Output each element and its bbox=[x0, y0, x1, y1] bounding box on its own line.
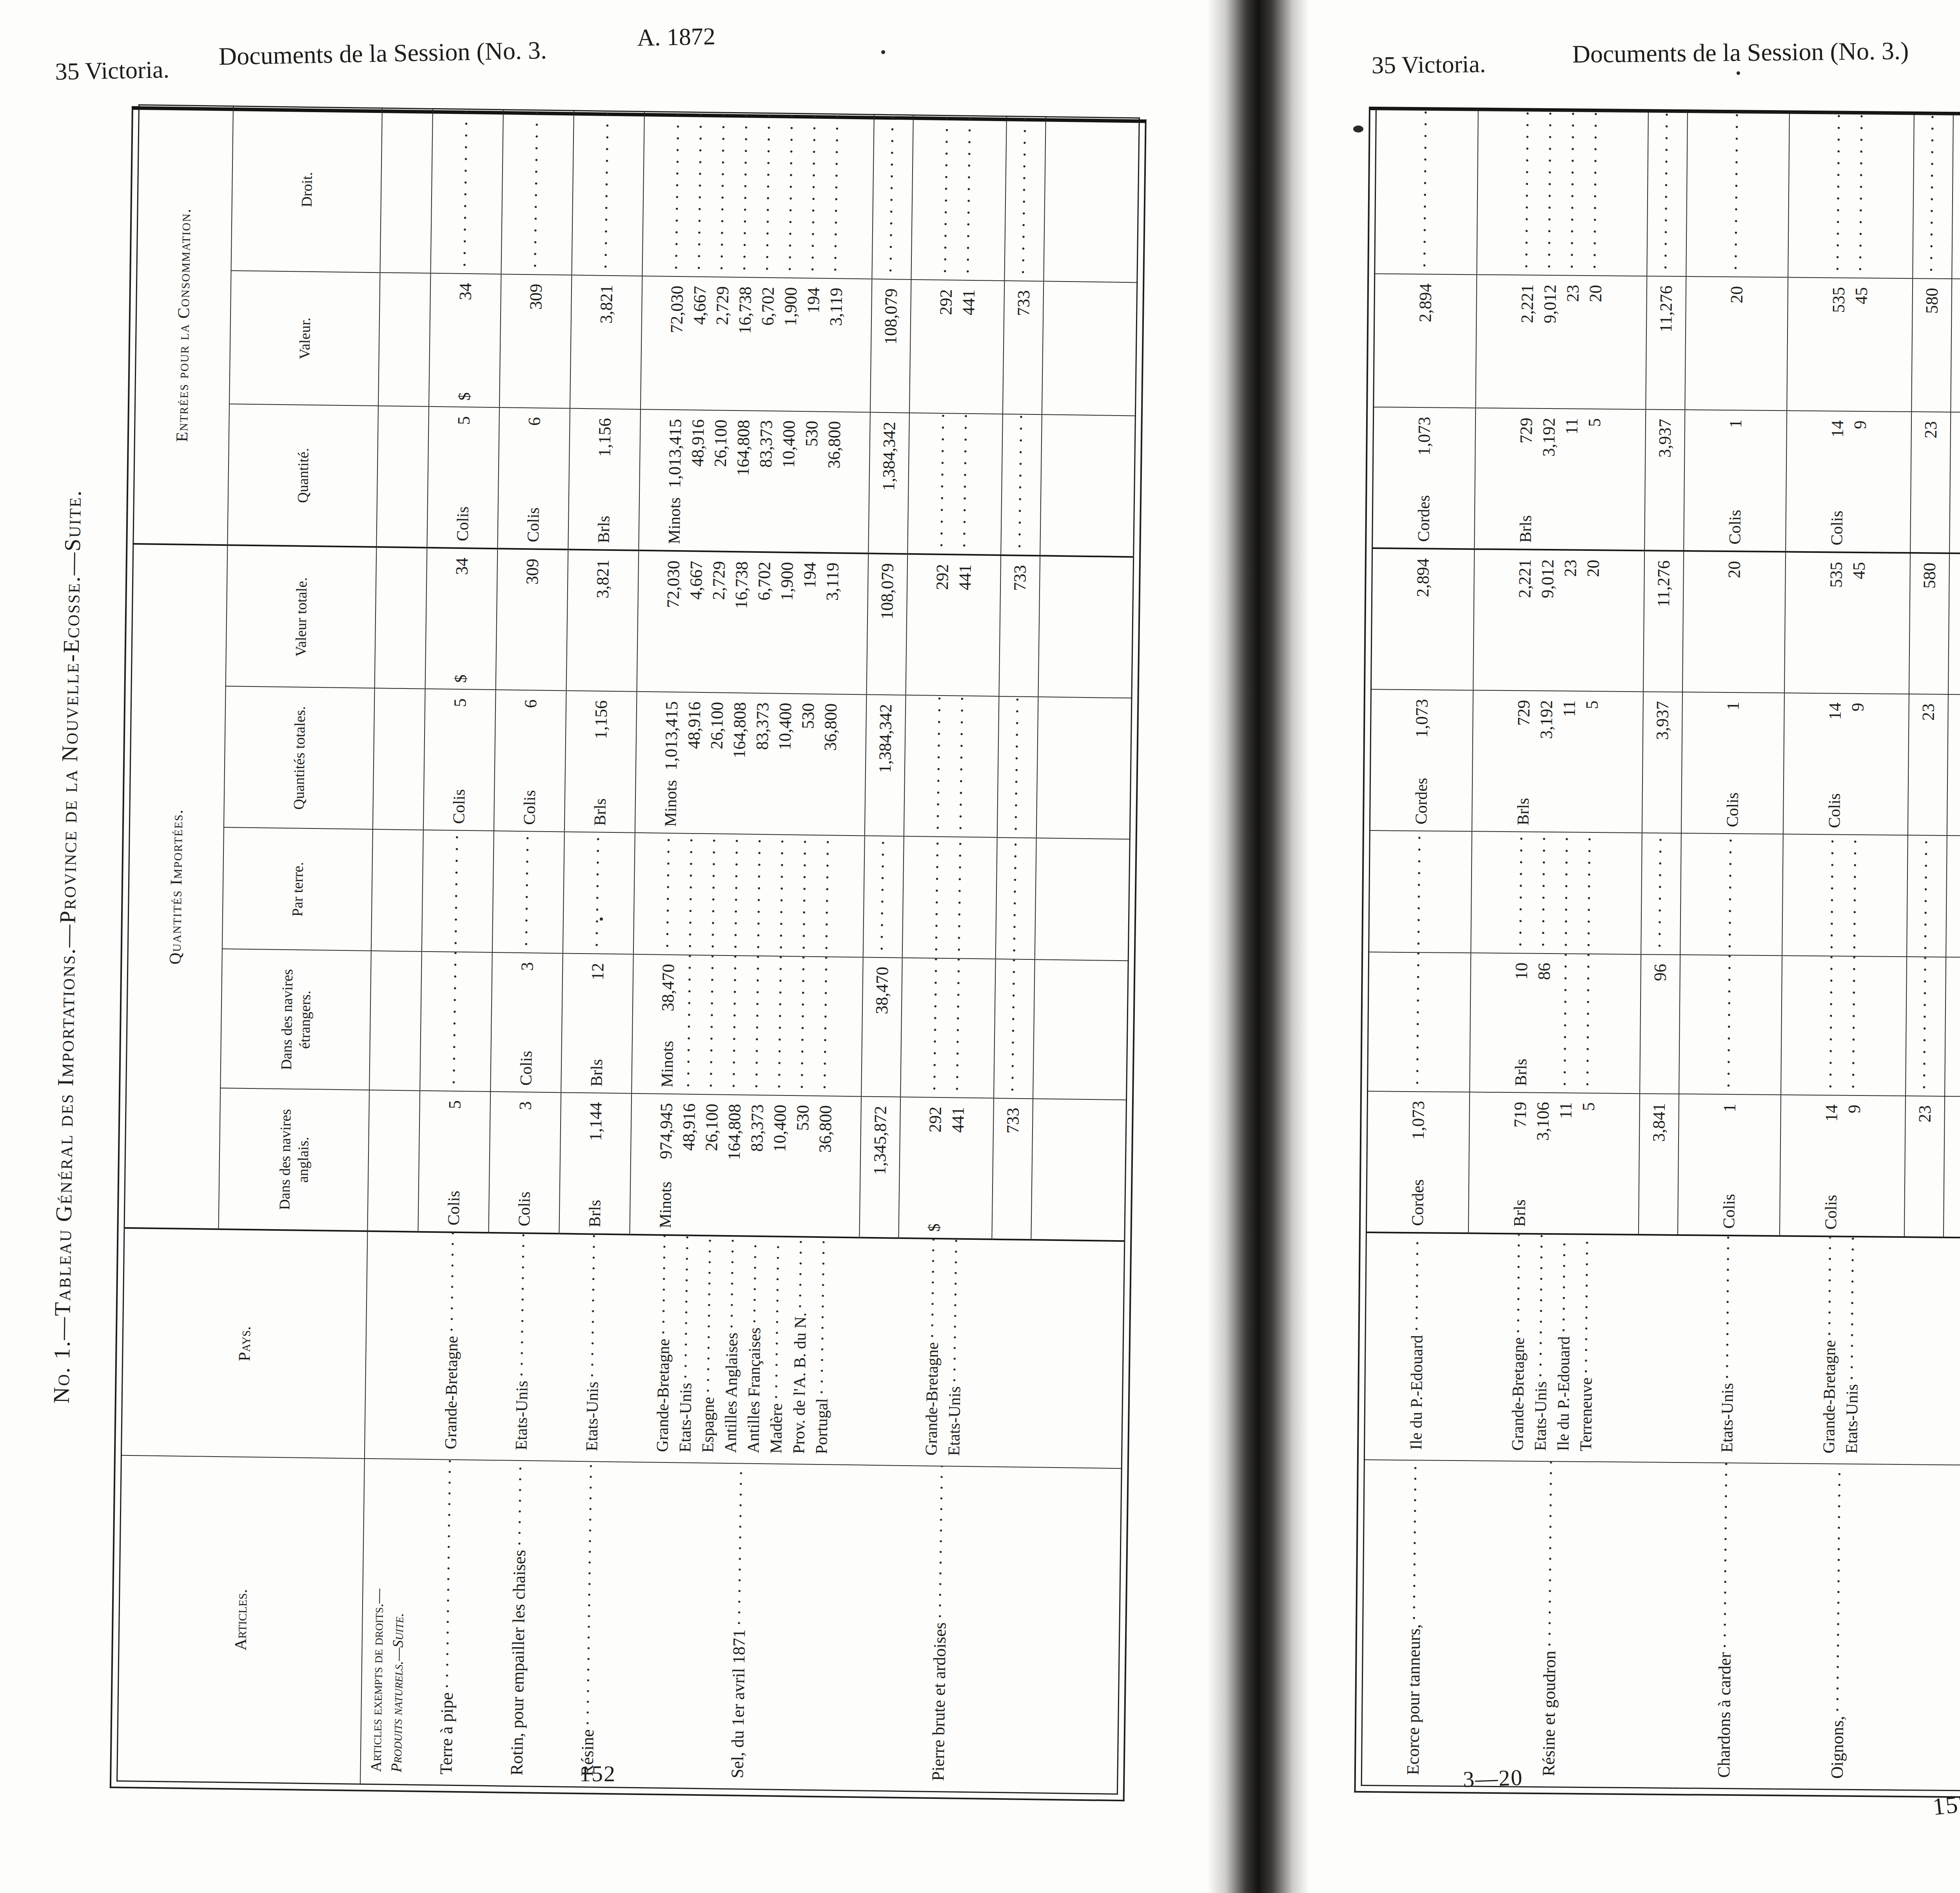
table-cell-droit bbox=[1647, 112, 1688, 277]
table-cell-etrangers bbox=[1368, 952, 1471, 1092]
value: 16,738 bbox=[730, 552, 753, 609]
table-cell-etrangers bbox=[1679, 955, 1782, 1095]
value: 10,400 bbox=[777, 412, 801, 468]
table-cell-valeur bbox=[378, 273, 430, 407]
leader-line: Ecorce pour tanneurs, bbox=[1401, 1461, 1427, 1785]
col-header-droit: Droit. bbox=[231, 106, 382, 273]
group-header-quantites-importees: Quantités Importées. bbox=[124, 544, 227, 1229]
table-cell-qtotales: Brls1,156 bbox=[564, 691, 637, 833]
right-head-victoria: 35 Victoria. bbox=[1372, 50, 1486, 79]
value: 23 bbox=[1562, 276, 1585, 302]
article-cell: Résine bbox=[552, 1461, 626, 1788]
scanned-document-spread: { "left_page": { "running_head": {"left"… bbox=[0, 0, 1960, 1893]
dotted-leader bbox=[825, 114, 850, 278]
article-cell bbox=[1900, 1465, 1942, 1791]
dotted-leader bbox=[1820, 957, 1844, 1095]
dotted-leader bbox=[734, 113, 759, 277]
unit-label: Colis bbox=[1723, 510, 1746, 551]
table-cell-valeur: 292 bbox=[1951, 279, 1960, 413]
table-cell-quantite: Brls7293,192115 bbox=[1474, 408, 1646, 551]
col-header-quantite: Quantité. bbox=[227, 404, 378, 547]
value: 5 bbox=[448, 690, 472, 707]
table-cell-valeur: 3,821 bbox=[570, 275, 642, 409]
ink-speck bbox=[881, 50, 885, 54]
dotted-leader bbox=[1556, 833, 1580, 954]
table-cell-terre bbox=[1946, 836, 1960, 958]
dotted-leader bbox=[1004, 838, 1027, 959]
article-cell: Résine et goudron bbox=[1464, 1461, 1637, 1788]
left-head-title: Documents de la Session (No. 3. bbox=[218, 36, 547, 71]
value: 441 bbox=[946, 1098, 969, 1133]
leader-line: Etats-Unis bbox=[509, 1234, 535, 1461]
value: 719 bbox=[1509, 1093, 1532, 1128]
right-head-title: Documents de la Session (No. 3.) bbox=[1572, 36, 1909, 69]
table-cell-qtotales: 23 bbox=[1908, 694, 1948, 836]
value: 96 bbox=[1649, 955, 1672, 981]
table-cell-qtotales bbox=[372, 689, 425, 830]
table-cell-etrangers bbox=[420, 952, 492, 1092]
table-cell-quantite: 1,384,342 bbox=[868, 412, 909, 554]
value: 5 bbox=[452, 407, 475, 425]
value: 2,729 bbox=[711, 278, 734, 325]
table-cell-terre bbox=[633, 833, 864, 957]
col-header-valeur: Valeur. bbox=[229, 271, 380, 406]
table-cell-terre bbox=[1782, 834, 1908, 957]
value: 1,073 bbox=[1407, 1092, 1430, 1140]
value: 36,800 bbox=[823, 412, 846, 469]
article-cell: Blé, depuis le 1er avril 1871 bbox=[1939, 1465, 1960, 1791]
unit-label: Minots bbox=[653, 1181, 677, 1235]
table-cell-droit bbox=[1788, 113, 1914, 279]
value: 26,100 bbox=[700, 1095, 724, 1152]
article-row: Résine et goudronGrande-BretagneEtats-Un… bbox=[1464, 110, 1648, 1788]
table-cell-qtotales: 3,937 bbox=[1642, 692, 1682, 834]
table-cell-vtotale: 11,276 bbox=[1643, 551, 1684, 692]
table-cell-etrangers bbox=[994, 959, 1035, 1099]
article-cell bbox=[852, 1465, 895, 1791]
value: 729 bbox=[1512, 691, 1535, 726]
article-cell: Rotin, pour empailler les chaises bbox=[481, 1460, 556, 1786]
dotted-leader bbox=[815, 957, 839, 1096]
table-cell-quantite: 23 bbox=[1910, 412, 1951, 554]
leader-line: Résine bbox=[575, 1462, 603, 1787]
dotted-leader bbox=[1555, 954, 1579, 1093]
value: 20 bbox=[1584, 276, 1608, 302]
dotted-leader bbox=[678, 956, 703, 1094]
table-cell-droit bbox=[872, 114, 913, 280]
leader-line: Etats-Unis bbox=[1715, 1236, 1740, 1462]
table-cell-qtotales: Cordes1,073 bbox=[1370, 690, 1473, 832]
unit-label: $ bbox=[453, 392, 475, 407]
table-cell-vtotale: 292 bbox=[1948, 553, 1960, 695]
article-row: Oignons,Grande-BretagneEtats-UnisColis14… bbox=[1775, 113, 1914, 1790]
pays-cell: Grande-BretagneEtats-UnisIle du P.-Edoua… bbox=[1466, 1234, 1639, 1462]
table-cell-quantite bbox=[376, 406, 429, 548]
dotted-leader bbox=[1843, 957, 1867, 1095]
table-cell-droit bbox=[1044, 117, 1139, 283]
leader-line: Prov. de l'A. B. du N. bbox=[787, 1238, 813, 1464]
dotted-leader bbox=[724, 956, 748, 1095]
dotted-leader bbox=[757, 114, 782, 278]
value: 1,073 bbox=[1410, 690, 1434, 738]
article-cell: Pierre brute et ardoises bbox=[891, 1466, 989, 1792]
dotted-leader bbox=[1414, 110, 1439, 274]
table-cell-quantite bbox=[1040, 415, 1135, 557]
pays-cell bbox=[1028, 1240, 1124, 1469]
value: 3,119 bbox=[821, 554, 844, 601]
value: 194 bbox=[799, 554, 822, 589]
pays-cell: Grande-BretagneEtats-Unis bbox=[895, 1238, 992, 1467]
value: 2,221 bbox=[1516, 276, 1539, 323]
table-cell-valeur: 292441 bbox=[909, 280, 1004, 414]
col-header-qtotales: Quantités totales. bbox=[223, 687, 374, 830]
table-cell-quantite: Brls1,156 bbox=[568, 409, 641, 550]
value: 34 bbox=[454, 274, 477, 300]
value: 3 bbox=[514, 1092, 537, 1110]
article-cell: Oignons, bbox=[1775, 1464, 1902, 1790]
leader-line: Grande-Bretagne bbox=[1506, 1235, 1531, 1461]
dotted-leader bbox=[793, 836, 818, 957]
table-cell-quantite bbox=[1001, 414, 1042, 556]
pays-cell bbox=[856, 1238, 898, 1466]
table-cell-valeur: 309 bbox=[499, 274, 571, 409]
left-page: No. 1.—Tableau Général des Importations.… bbox=[25, 105, 1145, 1801]
table-cell-anglais: 3,841 bbox=[1639, 1094, 1679, 1235]
table-cell-valeur bbox=[1042, 282, 1137, 416]
table-cell-valeur: 11,276 bbox=[1646, 276, 1686, 410]
table-cell-qtotales: Brls7293,192115 bbox=[1472, 690, 1643, 833]
dotted-leader bbox=[1650, 834, 1673, 954]
table-cell-etrangers: Colis3 bbox=[490, 953, 563, 1093]
value: 1,013,415 bbox=[663, 410, 687, 488]
unit-label: Colis bbox=[517, 790, 541, 831]
dotted-leader bbox=[871, 836, 895, 957]
unit-label: Colis bbox=[512, 1192, 535, 1233]
value: 2,729 bbox=[707, 552, 731, 600]
dotted-leader bbox=[949, 837, 973, 959]
table-cell-anglais: Colis3 bbox=[488, 1092, 561, 1234]
article-cell: Articles exempts de droits.—Produits nat… bbox=[360, 1459, 415, 1785]
value: 194 bbox=[802, 279, 825, 314]
value: 86 bbox=[1533, 954, 1556, 980]
value: 11 bbox=[1558, 692, 1581, 717]
dotted-leader bbox=[802, 114, 827, 278]
value: 733 bbox=[1001, 1099, 1024, 1134]
leader-line: Sel, du 1er avril 1871 bbox=[726, 1464, 753, 1789]
value: 26,100 bbox=[705, 693, 729, 750]
dotted-leader bbox=[1584, 112, 1609, 276]
dotted-leader bbox=[780, 114, 804, 278]
table-cell-valeur: 53545 bbox=[1787, 278, 1913, 412]
table-cell-droit bbox=[911, 115, 1006, 281]
value: 1,900 bbox=[779, 278, 802, 326]
table-cell-anglais bbox=[1031, 1099, 1126, 1241]
table-cell-terre bbox=[371, 830, 423, 952]
imports-table-right: Ecorce pour tanneurs,Ile du P.-EdouardCo… bbox=[1361, 109, 1960, 1795]
dotted-leader bbox=[1720, 834, 1744, 955]
value: 83,373 bbox=[751, 694, 774, 750]
table-cell-etrangers: Brls12 bbox=[561, 954, 633, 1094]
value: 36,800 bbox=[819, 694, 842, 751]
unit-label: Colis bbox=[514, 1051, 537, 1092]
table-cell-terre bbox=[563, 832, 635, 954]
unit-label: Cordes bbox=[1412, 495, 1435, 549]
unit-label: Brls bbox=[1514, 515, 1537, 549]
dotted-leader bbox=[1562, 111, 1586, 275]
dotted-leader bbox=[689, 113, 713, 276]
table-cell-quantite bbox=[907, 413, 1003, 555]
table-cell-qtotales bbox=[1036, 697, 1131, 839]
table-cell-droit bbox=[380, 108, 432, 274]
value: 2,894 bbox=[1412, 550, 1435, 598]
value: 164,808 bbox=[722, 1095, 746, 1160]
value: 1,144 bbox=[584, 1094, 608, 1141]
table-cell-anglais: Colis1 bbox=[1678, 1094, 1781, 1236]
value: 3,841 bbox=[1648, 1094, 1671, 1142]
dotted-leader bbox=[769, 957, 794, 1095]
value: 3,106 bbox=[1532, 1093, 1555, 1141]
dotted-leader bbox=[1822, 835, 1846, 956]
dotted-leader bbox=[792, 957, 817, 1096]
table-cell-etrangers: 38,470 bbox=[861, 957, 902, 1097]
dotted-leader bbox=[1850, 114, 1875, 278]
value: 9 bbox=[1843, 1096, 1866, 1114]
table-cell-quantite: Colis5 bbox=[427, 407, 499, 549]
unit-label: Brls bbox=[592, 516, 615, 550]
dotted-leader bbox=[771, 835, 795, 956]
table-cell-terre bbox=[902, 836, 997, 959]
value: 1,900 bbox=[775, 553, 799, 601]
table-cell-terre bbox=[1369, 831, 1472, 953]
table-cell-droit bbox=[1004, 116, 1045, 281]
table-cell-terre bbox=[1471, 832, 1642, 955]
table-cell-anglais: 733 bbox=[992, 1098, 1033, 1240]
table-cell-vtotale: 2,894 bbox=[1371, 549, 1475, 690]
pays-cell bbox=[1902, 1237, 1944, 1465]
value: 38,470 bbox=[870, 958, 894, 1014]
value: 5 bbox=[443, 1092, 466, 1109]
value: 5 bbox=[1577, 1094, 1600, 1111]
value: 3,119 bbox=[824, 279, 848, 326]
col-header-terre: Par terre. bbox=[222, 828, 372, 951]
table-cell-qtotales: Colis6 bbox=[494, 690, 566, 832]
value: 1,384,342 bbox=[877, 413, 901, 491]
value: 38,470 bbox=[656, 955, 680, 1012]
unit-label: Brls bbox=[1509, 1059, 1532, 1093]
value: 292 bbox=[931, 555, 954, 590]
unit-label: Cordes bbox=[1406, 1179, 1429, 1232]
value: 535 bbox=[1827, 278, 1850, 313]
value: 309 bbox=[524, 275, 548, 310]
value: 530 bbox=[797, 694, 820, 729]
right-table-frame: Ecorce pour tanneurs,Ile du P.-EdouardCo… bbox=[1354, 107, 1960, 1802]
value: 6,702 bbox=[753, 553, 776, 601]
dotted-leader bbox=[1516, 111, 1541, 275]
table-cell-vtotale: 2,2219,0122320 bbox=[1473, 549, 1644, 692]
table-cell-terre bbox=[492, 831, 564, 954]
dotted-leader bbox=[444, 952, 468, 1091]
value: 10 bbox=[1510, 954, 1534, 980]
leader-line: Etats-Unis bbox=[1840, 1237, 1865, 1464]
leader-line: Grande-Bretagne bbox=[919, 1239, 945, 1466]
value: 23 bbox=[1920, 412, 1943, 439]
table-cell-qtotales: Minots282 bbox=[1947, 694, 1960, 836]
pays-cell: Etats-Unis bbox=[556, 1234, 630, 1462]
table-cell-anglais: Cordes1,073 bbox=[1366, 1092, 1470, 1234]
unit-label: Brls bbox=[1508, 1199, 1531, 1234]
table-cell-qtotales bbox=[997, 696, 1038, 838]
table-cell-droit bbox=[1477, 110, 1648, 276]
pays-cell: Grande-BretagneEtats-Unis bbox=[1778, 1236, 1904, 1465]
dotted-leader bbox=[1844, 835, 1868, 956]
table-cell-anglais: Colis149 bbox=[1780, 1095, 1906, 1237]
leader-line: Antilles Françaises bbox=[741, 1237, 767, 1464]
dotted-leader bbox=[516, 832, 540, 953]
leader-line: Antilles Anglaises bbox=[719, 1237, 744, 1463]
value: 12 bbox=[586, 954, 609, 981]
dotted-leader bbox=[1577, 954, 1601, 1093]
pays-cell: Etats-Unis bbox=[1676, 1235, 1780, 1463]
dotted-leader bbox=[595, 111, 620, 275]
leader-line: Etats-Unis bbox=[580, 1235, 606, 1462]
table-cell-qtotales: Colis1 bbox=[1681, 692, 1784, 834]
dotted-leader bbox=[666, 113, 691, 276]
value: 45 bbox=[1850, 278, 1873, 305]
value: 1,156 bbox=[593, 409, 617, 457]
leader-line: Grande-Bretagne bbox=[650, 1236, 676, 1462]
table-cell-etrangers: 96 bbox=[1640, 955, 1680, 1094]
table-cell-droit bbox=[642, 111, 874, 279]
table-cell-quantite: Colis6 bbox=[497, 408, 570, 550]
value: 3 bbox=[516, 953, 539, 971]
table-cell-terre bbox=[421, 830, 494, 952]
dotted-leader bbox=[701, 956, 726, 1095]
ink-speck bbox=[1353, 125, 1363, 133]
table-cell-quantite: Minots1,013,41548,91626,100164,80883,373… bbox=[639, 409, 870, 554]
value: 6 bbox=[519, 690, 542, 708]
unit-label: Brls bbox=[585, 1059, 608, 1093]
value: 3,192 bbox=[1537, 409, 1561, 457]
table-cell-droit bbox=[1686, 112, 1789, 278]
value: 14 bbox=[1820, 1096, 1843, 1122]
dotted-leader bbox=[931, 414, 956, 554]
pays-cell: Ile du P.-Edouard bbox=[1364, 1233, 1468, 1461]
leader-line: Ile du P.-Edouard bbox=[1404, 1234, 1429, 1460]
dotted-leader bbox=[454, 110, 479, 274]
dotted-leader bbox=[1013, 117, 1037, 281]
article-cell bbox=[984, 1467, 1028, 1793]
value: 108,079 bbox=[879, 280, 903, 345]
dotted-leader bbox=[711, 113, 736, 277]
unit-label: Colis bbox=[451, 506, 474, 547]
value: 441 bbox=[954, 556, 977, 590]
dotted-leader bbox=[445, 831, 470, 952]
value: 83,373 bbox=[746, 1095, 769, 1152]
value: 530 bbox=[791, 1096, 814, 1131]
table-cell-etrangers: Brls1086 bbox=[1470, 953, 1641, 1094]
dotted-leader bbox=[1539, 111, 1563, 275]
table-cell-anglais: $292441 bbox=[898, 1097, 994, 1239]
dotted-leader bbox=[748, 835, 772, 956]
value: 23 bbox=[1913, 1097, 1936, 1123]
dotted-leader bbox=[525, 111, 550, 274]
value: 9 bbox=[1849, 412, 1872, 429]
table-cell-vtotale: 108,079 bbox=[866, 554, 907, 695]
value: 48,916 bbox=[682, 693, 706, 749]
table-cell-anglais: 1,345,872 bbox=[859, 1097, 900, 1238]
leader-line: Etats-Unis bbox=[942, 1240, 968, 1466]
value: 3,821 bbox=[595, 276, 618, 324]
dotted-leader bbox=[680, 834, 704, 955]
table-cell-quantite: Cordes1,073 bbox=[1372, 407, 1476, 549]
value: 45 bbox=[1848, 553, 1871, 580]
table-cell-terre bbox=[1641, 833, 1681, 955]
value: 23 bbox=[1559, 551, 1583, 577]
leader-line: Espagne bbox=[696, 1237, 722, 1463]
dotted-leader bbox=[1579, 833, 1602, 954]
article-cell: Ecorce pour tanneurs, bbox=[1361, 1460, 1466, 1786]
dotted-leader bbox=[1655, 112, 1679, 276]
value: 20 bbox=[1723, 552, 1746, 578]
dotted-leader bbox=[927, 696, 952, 837]
value: 26,100 bbox=[709, 411, 733, 467]
pays-cell: Grande-Bretagne bbox=[415, 1232, 488, 1460]
table-cell-quantite: Minots282 bbox=[1949, 412, 1960, 554]
value: 974,945 bbox=[654, 1094, 678, 1159]
right-running-head: 35 Victoria. Documents de la Session (No… bbox=[1332, 0, 1960, 102]
left-table-frame: Articles.Pays.Quantités Importées.Entrée… bbox=[110, 106, 1146, 1802]
value: 23 bbox=[1917, 695, 1940, 721]
imports-table-left: Articles.Pays.Quantités Importées.Entrée… bbox=[116, 104, 1140, 1795]
pays-cell bbox=[364, 1231, 418, 1459]
table-cell-valeur: 72,0304,6672,72916,7386,7021,9001943,119 bbox=[640, 276, 871, 412]
leader-line: Chardons à carder bbox=[1713, 1463, 1738, 1788]
dotted-leader bbox=[725, 834, 750, 956]
dotted-leader bbox=[1005, 697, 1029, 838]
value: 14 bbox=[1826, 412, 1849, 438]
value: 1,345,872 bbox=[868, 1097, 892, 1175]
table-cell-etrangers bbox=[1033, 960, 1128, 1100]
article-cell bbox=[1634, 1462, 1676, 1788]
table-cell-etrangers: Minots38,470 bbox=[632, 954, 863, 1097]
dotted-leader bbox=[924, 959, 949, 1097]
value: 729 bbox=[1515, 409, 1538, 444]
value: 34 bbox=[450, 549, 474, 575]
dotted-leader bbox=[1533, 832, 1557, 953]
unit-label: Colis bbox=[1717, 1194, 1740, 1235]
dotted-leader bbox=[1915, 836, 1938, 957]
pays-cell: Etats-Unis bbox=[485, 1233, 559, 1461]
value: 530 bbox=[800, 412, 823, 447]
table-cell-terre bbox=[1907, 836, 1947, 957]
value: 20 bbox=[1582, 551, 1605, 577]
table-cell-vtotale bbox=[1038, 556, 1133, 698]
unit-label: Brls bbox=[1512, 798, 1535, 832]
pays-cell: Grande-BretagneEtats-UnisEspagneAntilles… bbox=[626, 1235, 859, 1465]
value: 535 bbox=[1825, 553, 1848, 588]
value: 292 bbox=[924, 1098, 947, 1133]
table-cell-etrangers bbox=[1945, 957, 1960, 1097]
unit-label: $ bbox=[922, 1223, 945, 1238]
table-cell-terre bbox=[863, 836, 904, 958]
leader-line: Résine et goudron bbox=[1537, 1462, 1563, 1786]
pays-cell: Etats-Unis bbox=[1942, 1237, 1960, 1466]
value: 4,667 bbox=[688, 277, 711, 325]
unit-label: $ bbox=[449, 674, 472, 689]
leader-line: Grande-Bretagne bbox=[439, 1233, 465, 1460]
table-cell-droit bbox=[1375, 109, 1478, 275]
value: 11,276 bbox=[1655, 277, 1678, 332]
